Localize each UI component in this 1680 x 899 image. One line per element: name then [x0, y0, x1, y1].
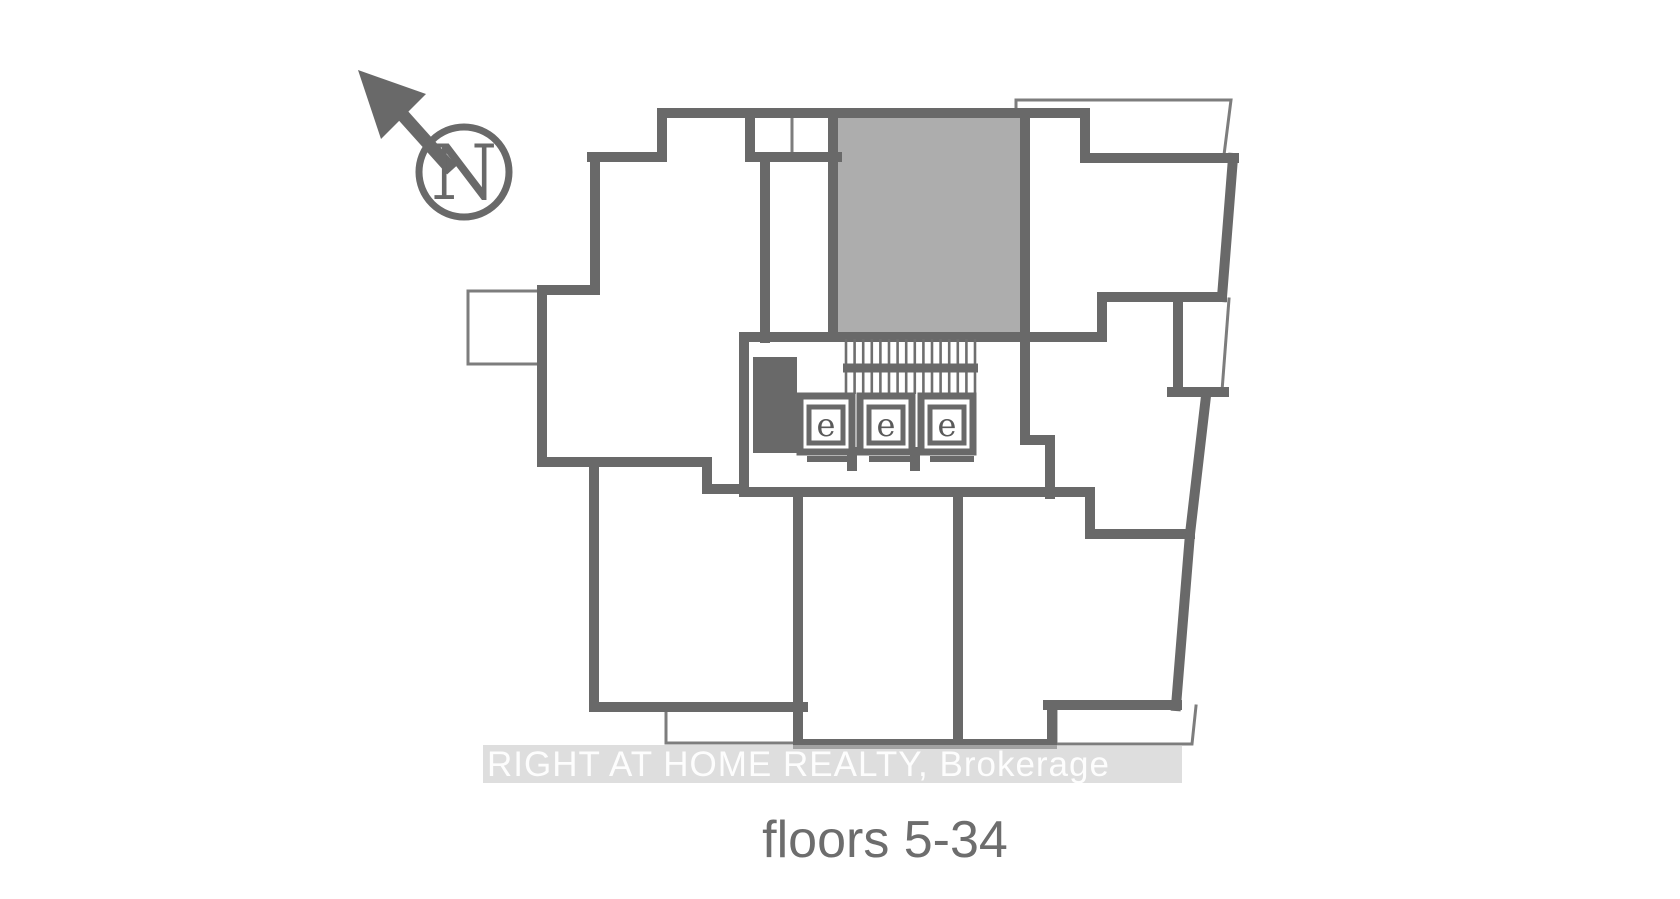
building-core: e e e	[753, 339, 978, 459]
balcony-bottom-right	[1056, 706, 1196, 744]
balcony-right-edge	[1222, 299, 1229, 391]
balcony-bottom-left	[666, 707, 799, 743]
keyplate-image: N	[0, 0, 1680, 899]
highlighted-unit	[833, 113, 1025, 337]
elevator-label: e	[817, 406, 836, 444]
stair-hatch-icon	[843, 339, 978, 394]
floor-plan-canvas: N	[0, 0, 1680, 899]
elevator-label: e	[938, 406, 957, 444]
elevator-2: e	[860, 396, 912, 452]
service-shaft-block	[753, 357, 797, 453]
balcony-left	[468, 291, 542, 364]
elevator-1: e	[800, 396, 852, 452]
north-label: N	[431, 128, 498, 217]
watermark-text: RIGHT AT HOME REALTY, Brokerage	[487, 745, 1110, 784]
north-indicator: N	[358, 70, 509, 217]
watermark: RIGHT AT HOME REALTY, Brokerage	[483, 745, 1182, 784]
elevator-3: e	[921, 396, 973, 452]
elevator-label: e	[877, 406, 896, 444]
floors-caption: floors 5-34	[762, 811, 1008, 869]
